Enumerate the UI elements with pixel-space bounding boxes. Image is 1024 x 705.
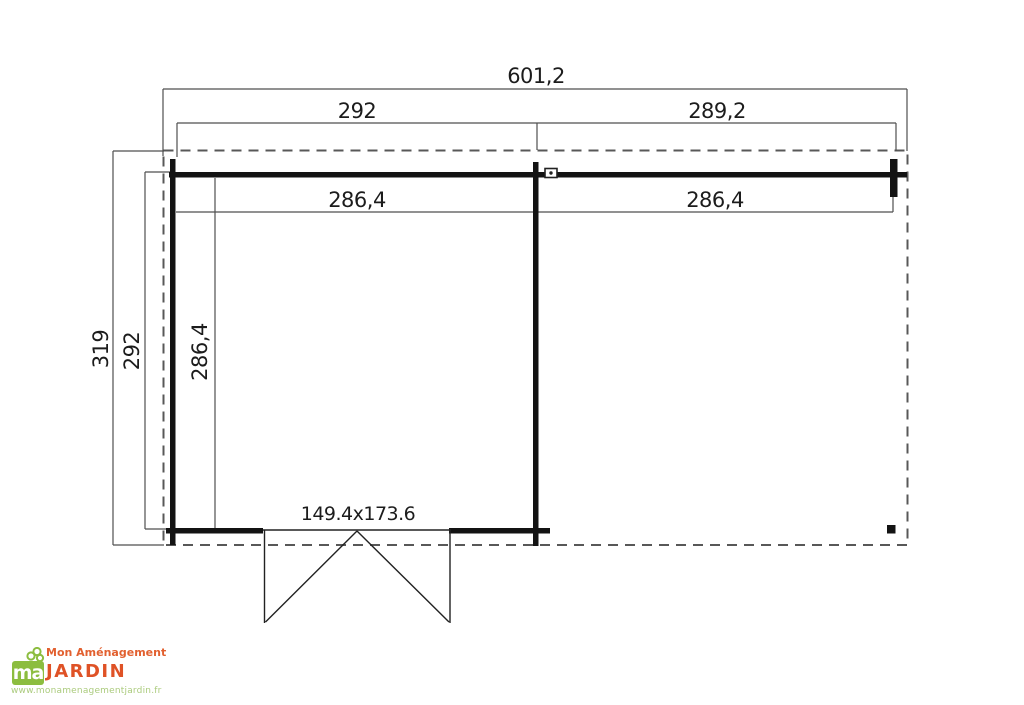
dim-right-inner-width-label: 286,4 — [686, 188, 744, 212]
left-wall — [170, 159, 176, 545]
dim-left-inner-width-label: 286,4 — [328, 188, 386, 212]
logo-brand-name: JARDIN — [46, 661, 126, 682]
double-door — [263, 530, 451, 623]
bottom-wall-right-segment — [449, 528, 550, 534]
door-size-label: 149.4x173.6 — [301, 503, 416, 525]
logo-tagline: Mon Aménagement — [46, 646, 166, 659]
door-swing-left — [265, 530, 358, 623]
door-swing-right — [357, 530, 450, 623]
floor-plan-canvas: 601,2 292 289,2 286,4 286,4 319 292 286,… — [0, 0, 1024, 705]
partition-wall — [533, 162, 539, 546]
plan-drawing — [0, 0, 1024, 705]
dim-total-width-label: 601,2 — [507, 64, 565, 88]
dim-outer-depth-label: 292 — [120, 332, 144, 371]
walls — [166, 159, 907, 546]
dim-inner-depth-label: 286,4 — [188, 323, 212, 381]
logo-monogram: ma — [12, 661, 44, 685]
dim-total-depth-label: 319 — [89, 330, 113, 369]
dim-left-section-width-label: 292 — [338, 99, 377, 123]
bottom-wall-left-segment — [166, 528, 263, 534]
bottom-right-post-marker — [887, 525, 896, 534]
right-corner-post — [890, 159, 898, 197]
logo-website-url: www.monamenagementjardin.fr — [11, 686, 162, 696]
wall-socket-symbol — [545, 169, 557, 178]
dimension-lines — [113, 89, 907, 545]
brand-logo: Mon Aménagement ma JARDIN www.monamenage… — [10, 644, 170, 700]
dim-right-section-width-label: 289,2 — [688, 99, 746, 123]
socket-dot — [549, 171, 552, 174]
